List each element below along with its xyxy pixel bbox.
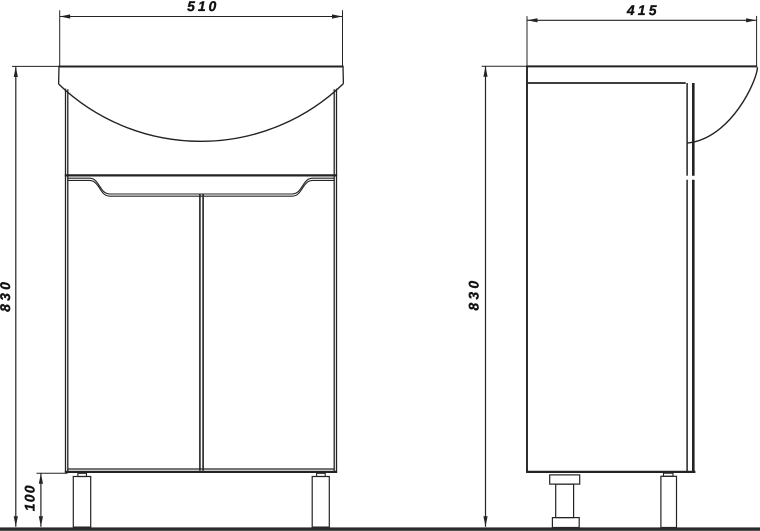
svg-text:830: 830	[0, 279, 13, 312]
svg-text:830: 830	[466, 278, 482, 311]
svg-text:415: 415	[626, 2, 660, 18]
svg-text:510: 510	[187, 0, 219, 14]
svg-text:100: 100	[22, 484, 38, 511]
